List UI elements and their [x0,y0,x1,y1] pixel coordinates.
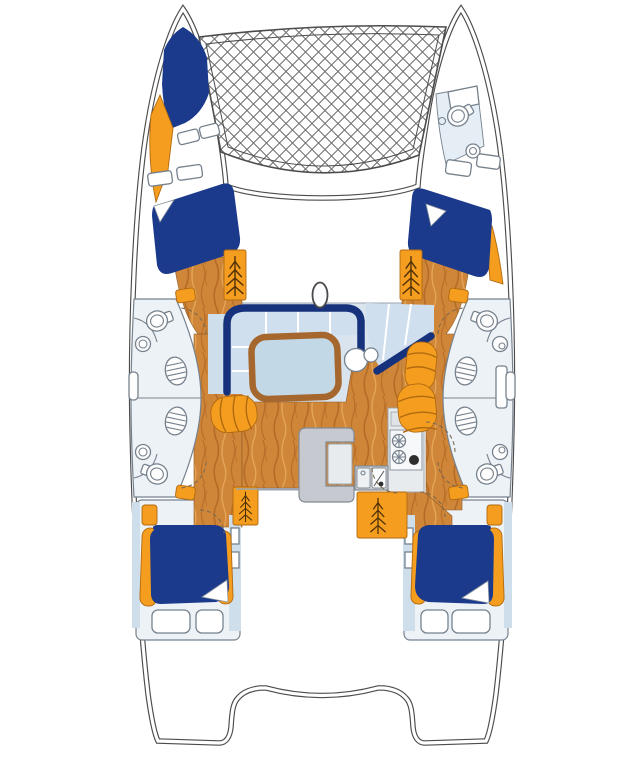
stove-knob-icon [409,455,419,465]
door-pad [175,288,196,304]
cushion-pad [487,505,502,525]
stool [364,348,378,362]
mast-base-icon [313,283,328,308]
trampoline-net [199,26,446,173]
steps-starboard-forward [400,250,422,300]
stove-burner-icon [393,435,406,448]
basin-icon [136,445,151,460]
stern-window-icon [452,610,490,633]
island-inner [328,444,352,484]
stern-window-icon [196,610,223,633]
stern-window-icon [421,610,448,633]
steps-starboard-aft [357,492,407,538]
hatch-icon [147,170,173,186]
saloon-table [251,335,339,400]
steps-port-aft [233,487,258,525]
side-deck [504,502,512,628]
hatch-icon [476,154,501,170]
door-pad [175,485,196,501]
porthole-icon [129,372,138,400]
stern-window-icon [152,610,190,633]
door-pad [448,485,469,501]
steps-port-forward [224,250,246,300]
hatch-icon [445,159,472,176]
locker-slot [231,528,239,544]
side-deck [132,502,140,628]
bow-head [436,86,484,164]
catamaran-floor-plan [0,0,644,768]
floor-plan-canvas [0,0,644,768]
cushion-pad [142,505,157,525]
basin-icon [136,337,151,352]
hatch-icon [176,164,203,180]
stove-burner-icon [393,451,406,464]
door-pad [448,288,469,304]
pleated-seat [209,394,259,435]
porthole-icon [506,372,515,400]
pleated-seat [396,382,438,433]
